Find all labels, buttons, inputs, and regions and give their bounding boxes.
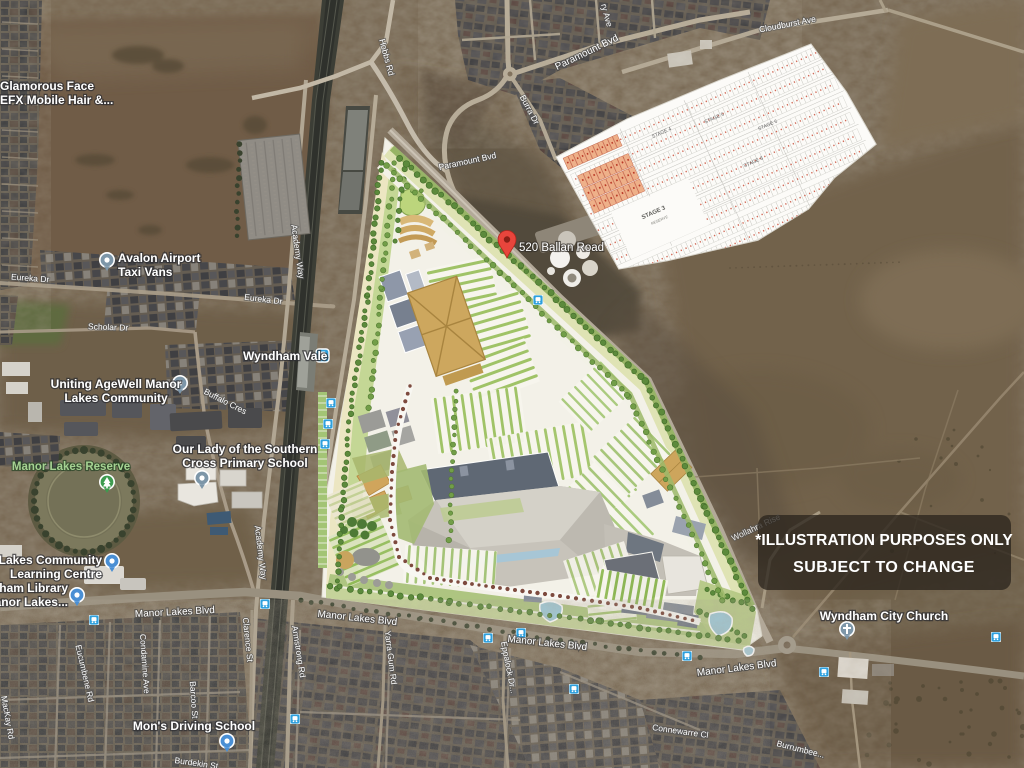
- svg-text:520 Ballan Road: 520 Ballan Road: [519, 242, 604, 254]
- svg-text:Manor Lakes Reserve: Manor Lakes Reserve: [12, 461, 130, 473]
- svg-text:EFX Mobile Hair &...: EFX Mobile Hair &...: [0, 93, 113, 107]
- svg-text:Wyndham City Church: Wyndham City Church: [820, 609, 948, 623]
- svg-text:...or Lakes Community: ...or Lakes Community: [0, 553, 102, 567]
- svg-text:Cross Primary School: Cross Primary School: [182, 456, 307, 470]
- svg-text:Manor Lakes...: Manor Lakes...: [0, 595, 68, 609]
- svg-text:Our Lady of the Southern: Our Lady of the Southern: [173, 442, 318, 456]
- svg-text:...ndham Library: ...ndham Library: [0, 581, 68, 595]
- svg-text:Uniting AgeWell Manor: Uniting AgeWell Manor: [51, 377, 182, 391]
- svg-text:Avalon Airport: Avalon Airport: [118, 251, 200, 265]
- svg-text:Lakes Community: Lakes Community: [64, 391, 168, 405]
- svg-text:Wyndham Vale: Wyndham Vale: [243, 349, 328, 363]
- svg-text:Mon's Driving School: Mon's Driving School: [133, 719, 255, 733]
- svg-text:SUBJECT TO CHANGE: SUBJECT TO CHANGE: [793, 559, 975, 576]
- svg-text:Glamorous Face: Glamorous Face: [0, 79, 94, 93]
- svg-text:Taxi Vans: Taxi Vans: [118, 265, 173, 279]
- svg-text:Learning Centre: Learning Centre: [10, 567, 102, 581]
- svg-text:Scholar Dr: Scholar Dr: [88, 321, 129, 332]
- svg-text:*ILLUSTRATION PURPOSES ONLY: *ILLUSTRATION PURPOSES ONLY: [755, 532, 1013, 549]
